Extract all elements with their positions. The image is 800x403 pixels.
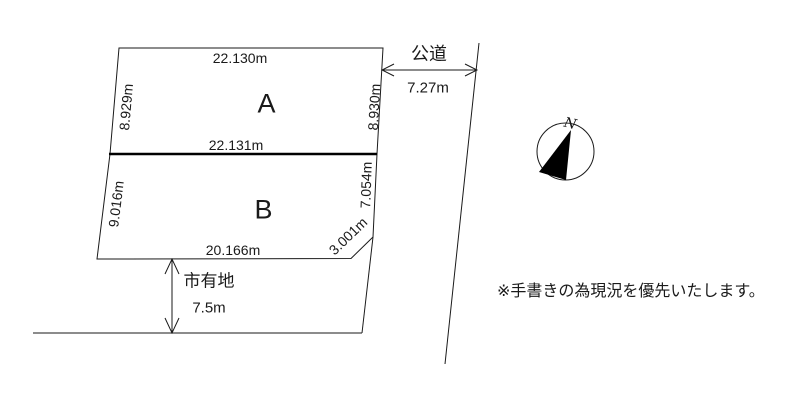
dim-a-bottom: 22.131m xyxy=(209,137,263,153)
dim-a-right: 8.930m xyxy=(365,83,383,130)
compass-needle xyxy=(539,130,571,180)
city-land-label: 市有地 xyxy=(184,267,235,292)
city-land-depth-arrow xyxy=(165,259,179,333)
plot-a-label: A xyxy=(257,89,276,120)
road-label: 公道 xyxy=(411,40,447,66)
city-land-right-boundary xyxy=(362,237,373,333)
road-line xyxy=(445,43,479,364)
handwritten-disclaimer-note: ※手書きの為現況を優先いたします。 xyxy=(497,277,765,301)
city-land-width-value: 7.5m xyxy=(192,300,225,317)
road-width-value: 7.27m xyxy=(407,80,449,97)
dim-b-bottom: 20.166m xyxy=(206,242,260,258)
compass xyxy=(537,123,594,180)
plot-b-label: B xyxy=(254,195,273,226)
land-survey-diagram: 22.130m A 8.929m 8.930m 22.131m 9.016m B… xyxy=(0,0,800,403)
dim-a-top: 22.130m xyxy=(213,50,267,66)
dim-b-right: 7.054m xyxy=(357,161,375,208)
